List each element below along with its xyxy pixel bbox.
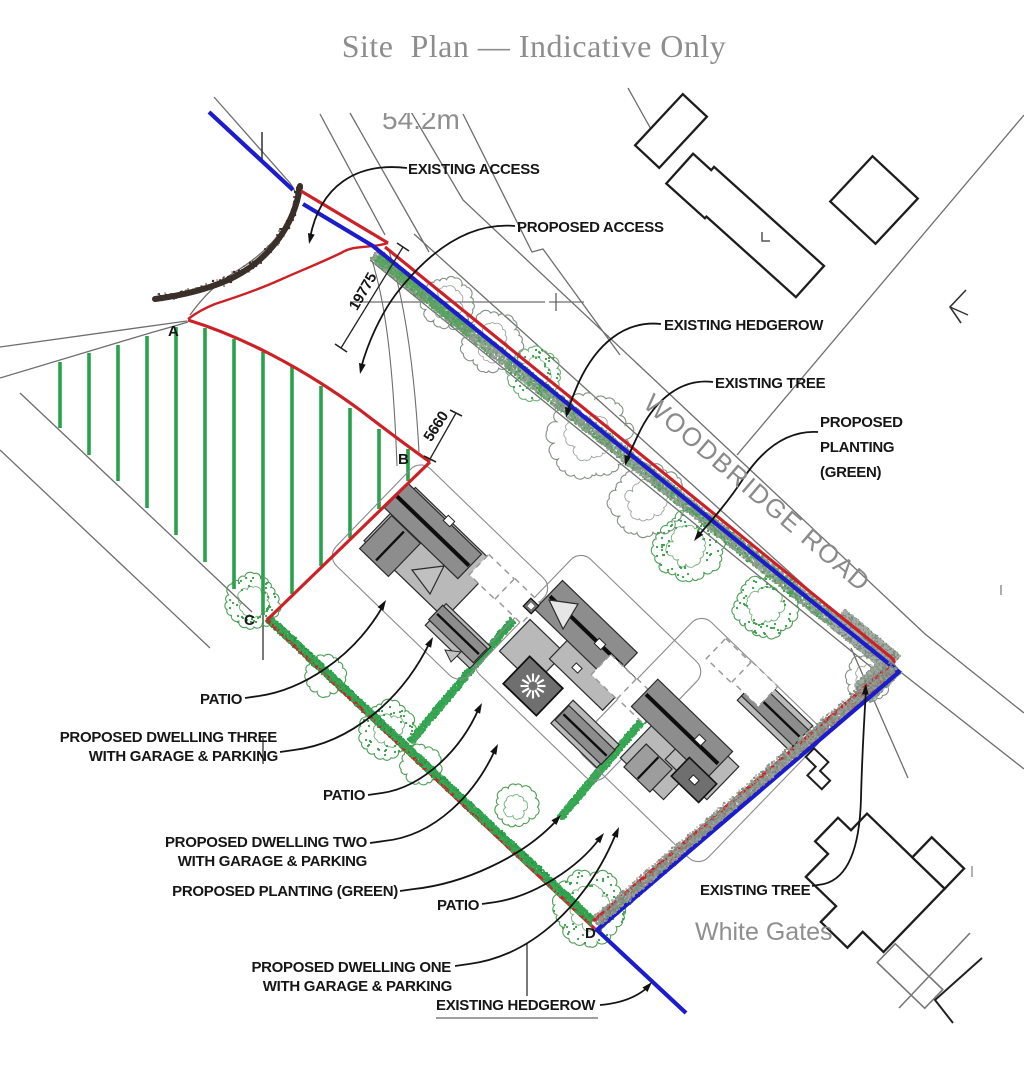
svg-text:EXISTING HEDGEROW: EXISTING HEDGEROW [436,997,596,1014]
svg-text:EXISTING HEDGEROW: EXISTING HEDGEROW [664,317,824,334]
svg-text:D: D [585,925,596,942]
svg-text:PROPOSED: PROPOSED [820,414,903,431]
svg-text:White Gates: White Gates [695,918,833,946]
svg-text:PROPOSED DWELLING TWO: PROPOSED DWELLING TWO [165,834,368,851]
svg-text:Site Plan — Indicative Only: Site Plan — Indicative Only [342,28,727,64]
svg-text:PATIO: PATIO [323,787,366,804]
svg-text:B: B [398,451,409,468]
svg-text:PATIO: PATIO [437,897,480,914]
svg-text:PROPOSED PLANTING (GREEN): PROPOSED PLANTING (GREEN) [172,883,398,900]
svg-text:PROPOSED DWELLING ONE: PROPOSED DWELLING ONE [251,959,451,976]
svg-text:EXISTING TREE: EXISTING TREE [715,375,826,392]
svg-text:WITH GARAGE & PARKING: WITH GARAGE & PARKING [89,748,278,765]
svg-text:A: A [168,323,179,340]
svg-text:WITH GARAGE & PARKING: WITH GARAGE & PARKING [263,978,452,995]
svg-text:PATIO: PATIO [200,691,243,708]
svg-text:(GREEN): (GREEN) [820,464,882,481]
svg-text:PLANTING: PLANTING [820,439,894,456]
svg-text:C: C [244,612,255,629]
svg-text:EXISTING TREE: EXISTING TREE [700,882,811,899]
svg-text:EXISTING ACCESS: EXISTING ACCESS [408,161,540,178]
svg-text:PROPOSED ACCESS: PROPOSED ACCESS [517,219,664,236]
svg-text:PROPOSED DWELLING THREE: PROPOSED DWELLING THREE [60,729,278,746]
svg-text:WITH GARAGE & PARKING: WITH GARAGE & PARKING [178,853,367,870]
